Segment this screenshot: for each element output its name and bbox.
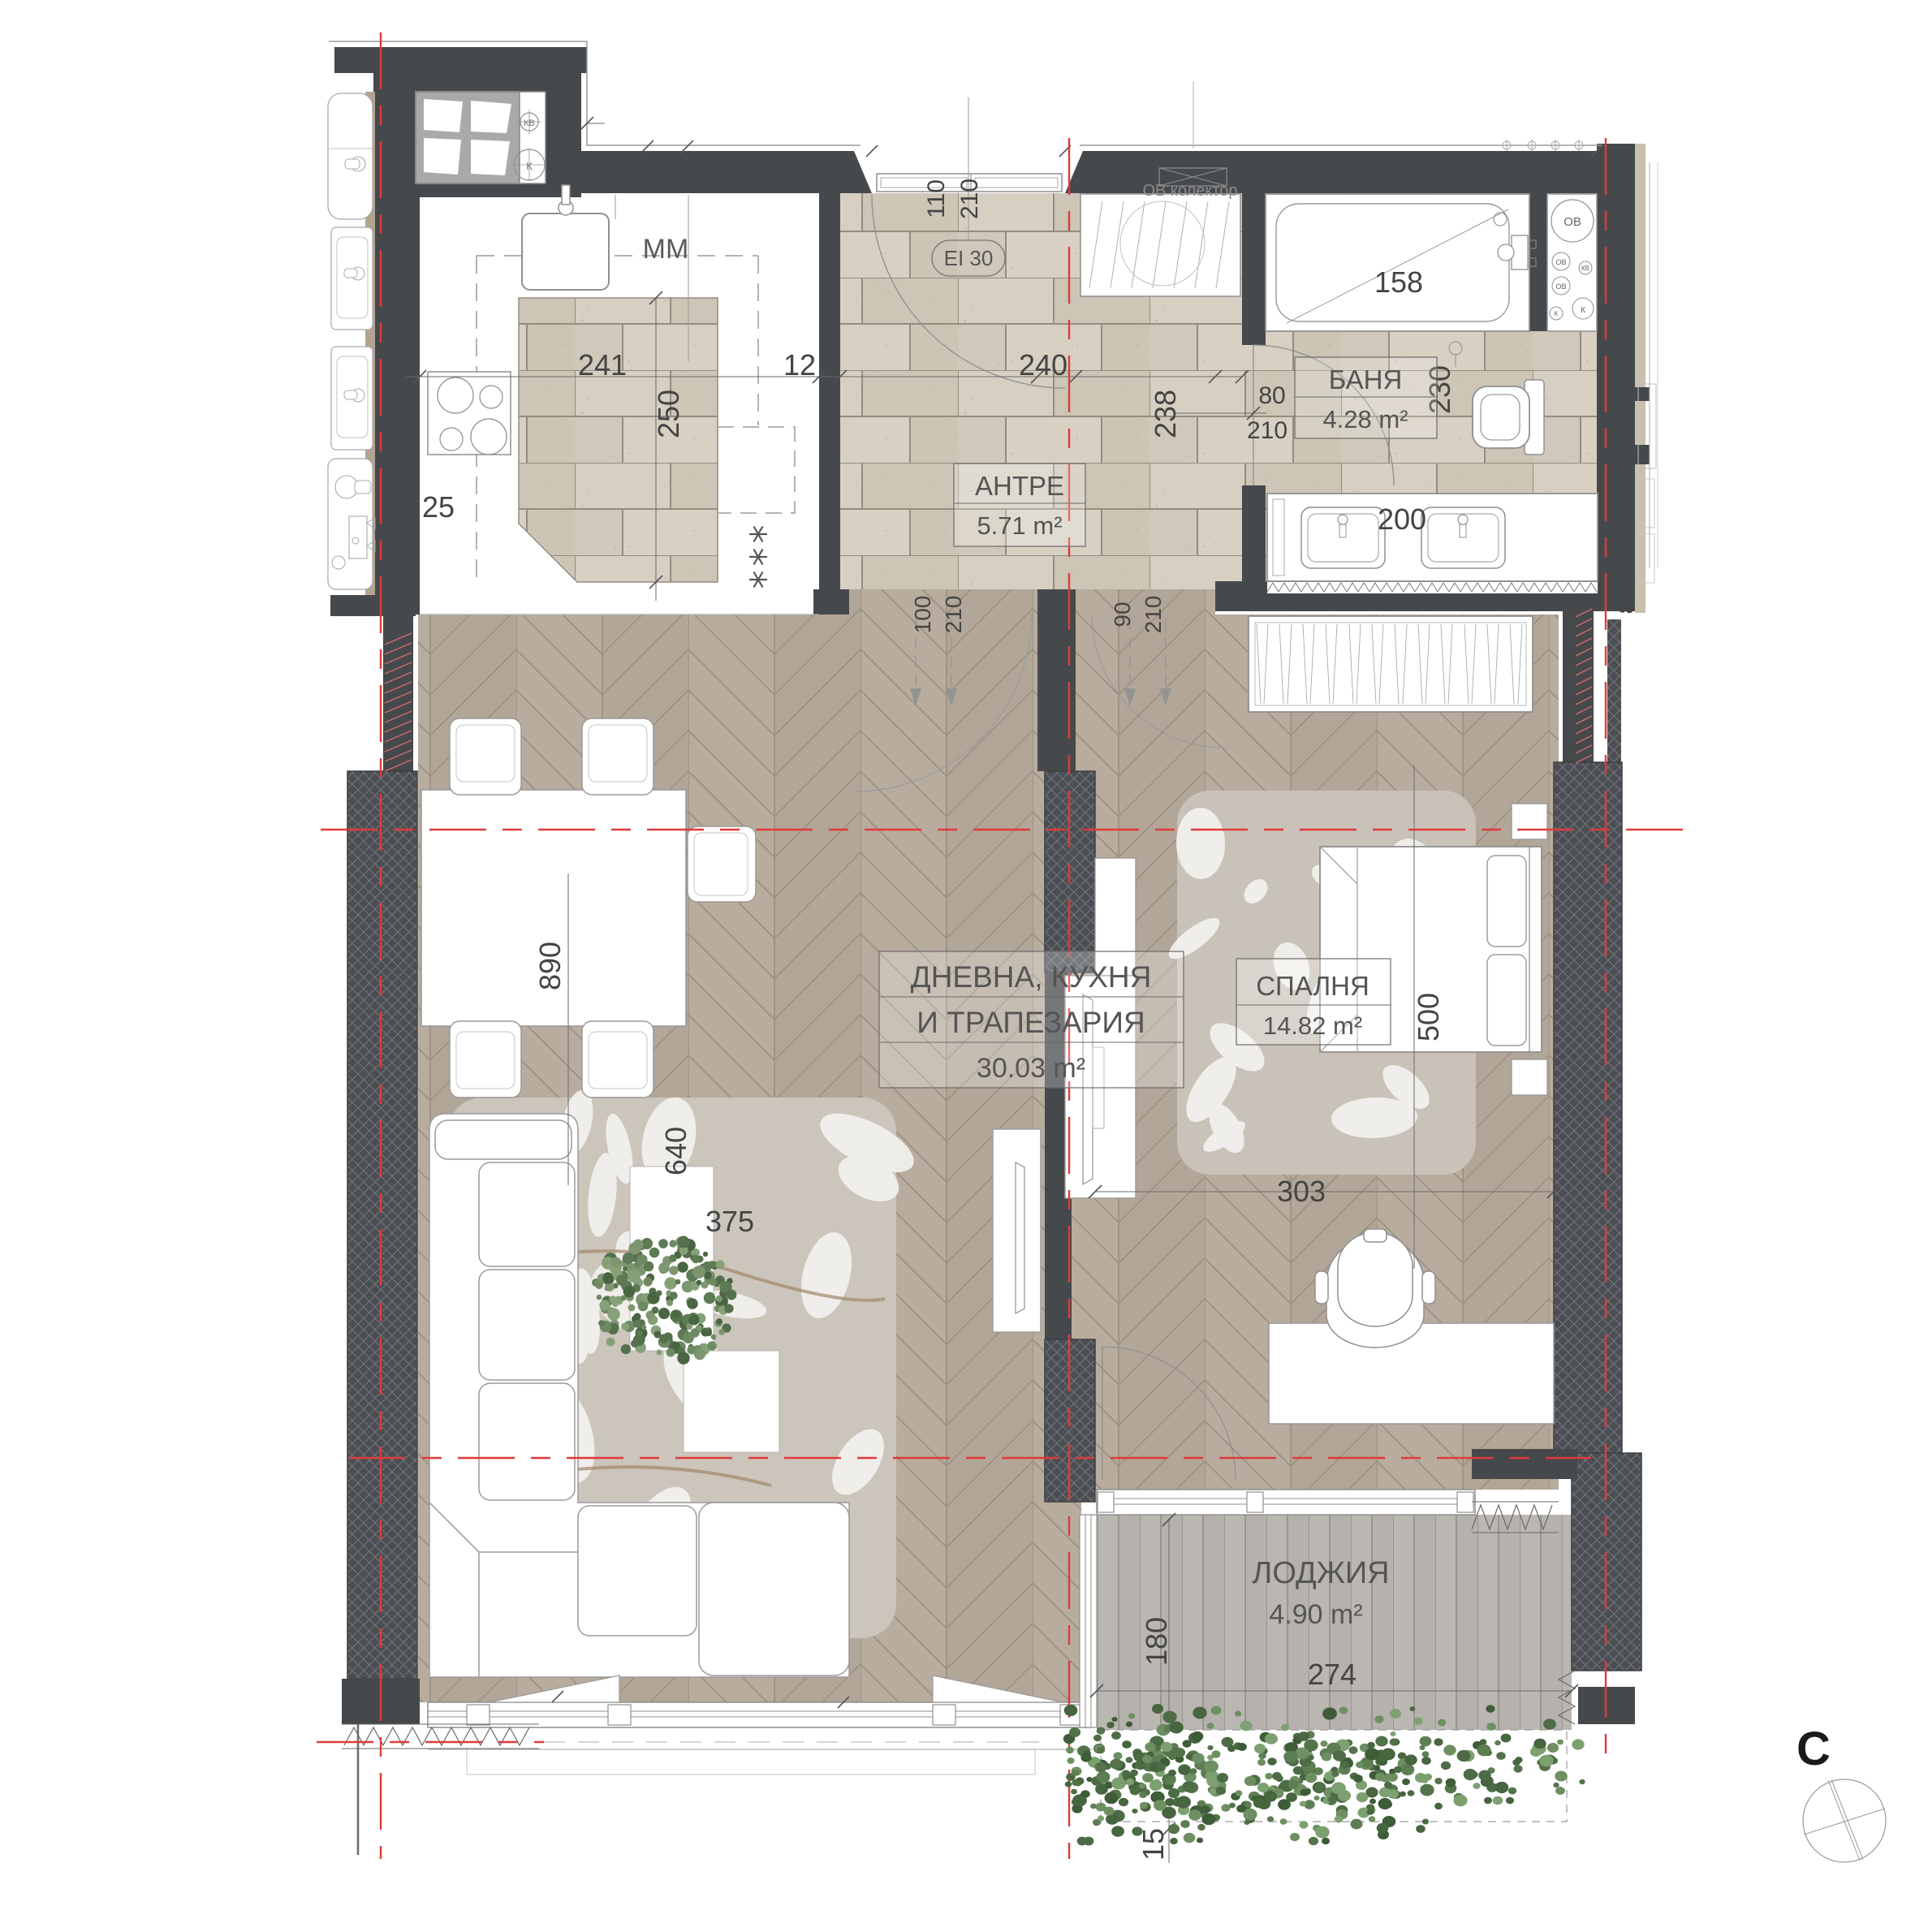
svg-text:210: 210 <box>1141 596 1166 634</box>
svg-text:250: 250 <box>652 390 685 438</box>
svg-text:К: К <box>526 160 533 172</box>
svg-text:274: 274 <box>1308 1658 1357 1691</box>
svg-text:80: 80 <box>1258 382 1285 409</box>
svg-text:ДНЕВНА, КУХНЯ: ДНЕВНА, КУХНЯ <box>911 960 1152 994</box>
svg-text:КВ: КВ <box>524 119 535 128</box>
svg-text:ММ: ММ <box>643 234 689 265</box>
svg-text:КВ: КВ <box>1581 265 1589 272</box>
svg-text:890: 890 <box>533 942 567 990</box>
svg-text:EI 30: EI 30 <box>944 246 994 270</box>
svg-text:И ТРАПЕЗАРИЯ: И ТРАПЕЗАРИЯ <box>917 1006 1145 1039</box>
svg-text:375: 375 <box>705 1205 754 1238</box>
svg-text:25: 25 <box>422 490 455 524</box>
svg-text:4.28 m²: 4.28 m² <box>1322 405 1408 433</box>
svg-text:8: 8 <box>1614 602 1638 614</box>
svg-text:240: 240 <box>1019 348 1068 382</box>
svg-text:238: 238 <box>1149 390 1182 438</box>
svg-text:241: 241 <box>578 348 627 382</box>
svg-text:12: 12 <box>783 348 816 382</box>
svg-text:30.03 m²: 30.03 m² <box>977 1053 1085 1084</box>
svg-text:БАНЯ: БАНЯ <box>1329 364 1403 395</box>
svg-text:15: 15 <box>1137 1828 1170 1861</box>
svg-text:ОВ колектор: ОВ колектор <box>1142 182 1237 200</box>
svg-text:180: 180 <box>1140 1617 1173 1666</box>
svg-text:АНТРЕ: АНТРЕ <box>975 471 1064 501</box>
svg-text:ОВ: ОВ <box>1555 282 1566 291</box>
svg-text:200: 200 <box>1378 502 1426 536</box>
svg-text:5.71 m²: 5.71 m² <box>977 511 1062 540</box>
svg-text:158: 158 <box>1374 265 1423 299</box>
svg-text:ЛОДЖИЯ: ЛОДЖИЯ <box>1252 1556 1389 1590</box>
svg-text:ОВ: ОВ <box>1555 258 1566 266</box>
svg-text:640: 640 <box>659 1127 692 1175</box>
svg-text:110: 110 <box>923 179 950 218</box>
svg-text:210: 210 <box>956 179 983 219</box>
svg-text:4.90 m²: 4.90 m² <box>1269 1599 1362 1630</box>
svg-text:210: 210 <box>1247 417 1287 444</box>
svg-text:500: 500 <box>1412 993 1445 1041</box>
svg-text:210: 210 <box>941 596 966 634</box>
svg-text:C: C <box>1796 1723 1831 1775</box>
svg-text:К: К <box>1581 306 1585 315</box>
svg-text:К: К <box>1555 310 1559 317</box>
svg-text:СПАЛНЯ: СПАЛНЯ <box>1256 971 1369 1001</box>
svg-text:303: 303 <box>1277 1175 1326 1208</box>
svg-text:100: 100 <box>910 596 935 634</box>
svg-text:90: 90 <box>1110 602 1135 627</box>
svg-text:ОВ: ОВ <box>1564 215 1581 229</box>
svg-text:14.82 m²: 14.82 m² <box>1263 1011 1362 1040</box>
